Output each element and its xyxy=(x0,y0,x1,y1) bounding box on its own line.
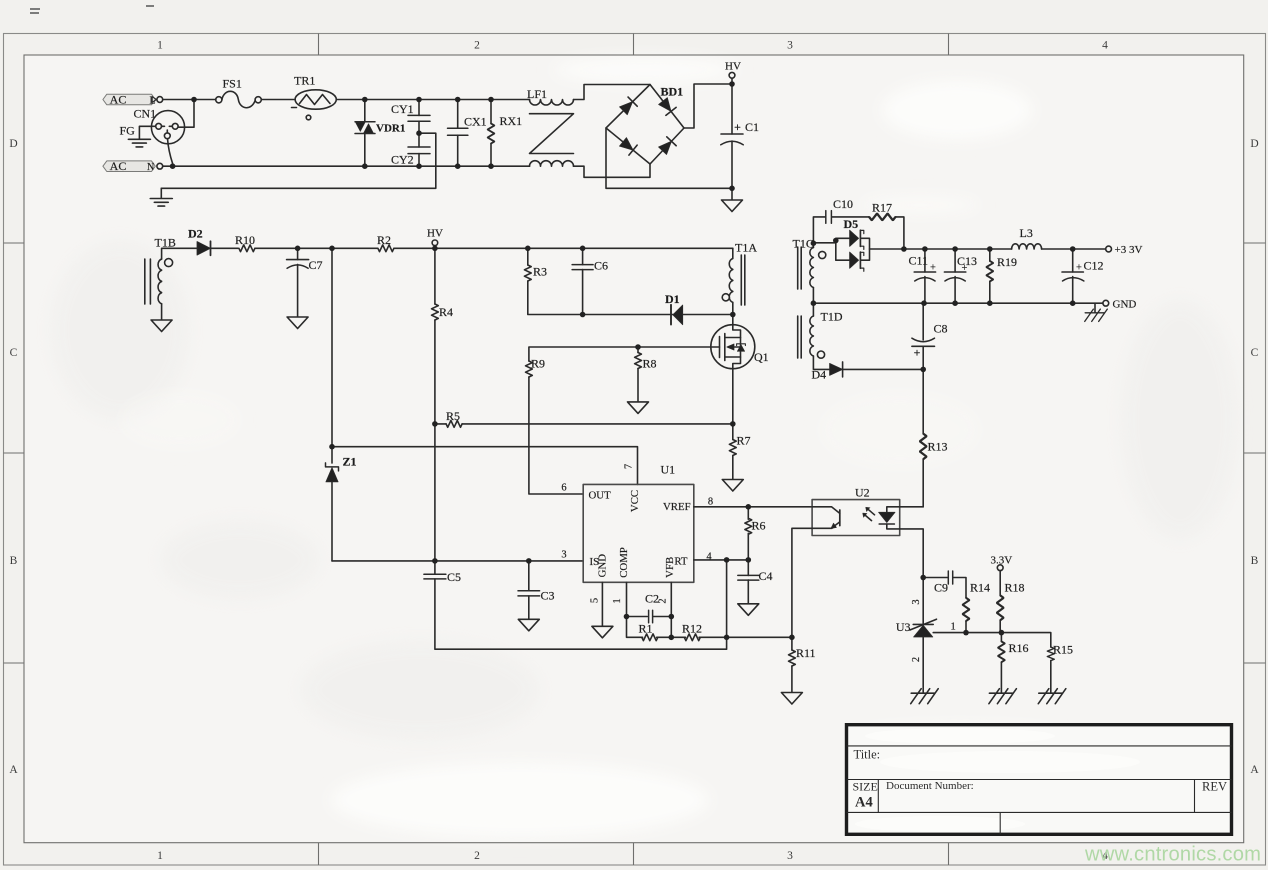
svg-text:2: 2 xyxy=(474,850,480,862)
svg-text:R12: R12 xyxy=(682,622,702,636)
svg-text:1: 1 xyxy=(612,598,623,603)
svg-text:FS1: FS1 xyxy=(223,77,242,91)
svg-text:B: B xyxy=(10,555,18,567)
svg-text:VFB: VFB xyxy=(664,557,676,578)
svg-text:4: 4 xyxy=(1102,40,1108,52)
svg-text:D4: D4 xyxy=(812,368,827,382)
svg-text:1: 1 xyxy=(951,622,956,633)
svg-text:D1: D1 xyxy=(665,292,680,306)
svg-text:AC: AC xyxy=(110,93,127,107)
svg-text:+: + xyxy=(1076,263,1082,274)
svg-text:Z1: Z1 xyxy=(343,455,357,469)
svg-text:C8: C8 xyxy=(934,322,948,336)
svg-text:U3: U3 xyxy=(896,620,911,634)
svg-text:R2: R2 xyxy=(377,233,391,247)
svg-text:7: 7 xyxy=(624,464,635,469)
svg-text:A: A xyxy=(9,764,18,776)
svg-text:D: D xyxy=(1250,138,1258,150)
svg-text:R18: R18 xyxy=(1005,581,1025,595)
svg-text:+: + xyxy=(930,263,936,274)
svg-text:RX1: RX1 xyxy=(500,114,523,128)
svg-text:C: C xyxy=(10,347,18,359)
svg-text:3: 3 xyxy=(787,850,793,862)
svg-text:U2: U2 xyxy=(855,486,870,500)
svg-text:C7: C7 xyxy=(309,258,323,272)
svg-text:3: 3 xyxy=(787,40,793,52)
svg-text:C3: C3 xyxy=(541,589,555,603)
svg-text:CY1: CY1 xyxy=(391,102,414,116)
svg-text:COMP: COMP xyxy=(618,547,630,578)
svg-text:C10: C10 xyxy=(833,197,853,211)
svg-text:GND: GND xyxy=(1113,298,1137,310)
svg-text:LF1: LF1 xyxy=(527,87,547,101)
svg-text:3.3V: 3.3V xyxy=(991,555,1013,567)
svg-text:CX1: CX1 xyxy=(464,115,487,129)
svg-text:T1A: T1A xyxy=(735,241,757,255)
svg-text:D2: D2 xyxy=(188,227,203,241)
svg-text:C5: C5 xyxy=(447,570,461,584)
svg-text:R8: R8 xyxy=(643,357,657,371)
svg-text:U1: U1 xyxy=(661,463,676,477)
svg-text:BD1: BD1 xyxy=(661,85,684,99)
svg-text:T1C: T1C xyxy=(793,237,814,251)
svg-text:Q1: Q1 xyxy=(754,350,769,364)
svg-text:+3 3V: +3 3V xyxy=(1115,244,1143,256)
svg-text:Document Number:: Document Number: xyxy=(886,780,974,792)
svg-text:C12: C12 xyxy=(1084,259,1104,273)
svg-text:RT: RT xyxy=(674,555,688,567)
svg-text:1: 1 xyxy=(157,850,163,862)
svg-text:3: 3 xyxy=(911,599,922,604)
svg-text:C11: C11 xyxy=(909,254,929,268)
svg-text:R6: R6 xyxy=(752,519,766,533)
svg-text:R4: R4 xyxy=(439,305,453,319)
svg-text:www.cntronics.com: www.cntronics.com xyxy=(1084,844,1261,866)
svg-text:2: 2 xyxy=(658,598,669,603)
svg-text:4: 4 xyxy=(706,552,712,563)
svg-text:TR1: TR1 xyxy=(294,74,315,88)
svg-text:C: C xyxy=(1251,347,1259,359)
svg-text:R1: R1 xyxy=(639,622,653,636)
svg-text:2: 2 xyxy=(474,40,480,52)
svg-text:R10: R10 xyxy=(235,233,255,247)
svg-text:GND: GND xyxy=(597,554,609,578)
svg-text:C6: C6 xyxy=(594,259,608,273)
svg-text:C2: C2 xyxy=(645,592,659,606)
svg-text:N: N xyxy=(147,162,154,173)
svg-text:OUT: OUT xyxy=(589,490,612,502)
svg-text:R5: R5 xyxy=(446,409,460,423)
svg-text:T1D: T1D xyxy=(821,310,843,324)
svg-text:8: 8 xyxy=(708,497,713,508)
svg-text:C9: C9 xyxy=(934,581,948,595)
svg-text:D: D xyxy=(9,138,17,150)
svg-text:B: B xyxy=(1251,555,1259,567)
svg-text:R3: R3 xyxy=(533,265,547,279)
svg-text:R14: R14 xyxy=(970,581,990,595)
svg-text:T1B: T1B xyxy=(155,235,176,249)
svg-text:R17: R17 xyxy=(872,201,892,215)
svg-text:R19: R19 xyxy=(997,255,1017,269)
svg-text:C4: C4 xyxy=(759,569,773,583)
svg-text:HV: HV xyxy=(725,61,741,73)
svg-text:VCC: VCC xyxy=(629,490,641,512)
svg-text:5: 5 xyxy=(590,598,601,603)
svg-text:HV: HV xyxy=(427,228,443,240)
svg-text:3: 3 xyxy=(561,550,566,561)
svg-text:SIZE: SIZE xyxy=(853,780,878,794)
svg-text:R15: R15 xyxy=(1053,643,1073,657)
svg-text:L: L xyxy=(150,95,156,106)
svg-text:R7: R7 xyxy=(737,434,751,448)
svg-text:Title:: Title: xyxy=(854,748,881,762)
svg-text:AC: AC xyxy=(110,159,127,173)
svg-text:R13: R13 xyxy=(928,440,948,454)
svg-text:R16: R16 xyxy=(1009,641,1029,655)
svg-text:REV: REV xyxy=(1202,780,1227,794)
svg-text:C1: C1 xyxy=(745,120,759,134)
svg-text:6: 6 xyxy=(561,483,566,494)
svg-text:VREF: VREF xyxy=(663,501,691,513)
svg-text:R9: R9 xyxy=(531,357,545,371)
svg-text:VDR1: VDR1 xyxy=(376,123,405,135)
svg-text:A: A xyxy=(1250,764,1259,776)
svg-text:FG: FG xyxy=(120,124,136,138)
svg-text:L3: L3 xyxy=(1020,226,1033,240)
svg-text:1: 1 xyxy=(157,40,163,52)
svg-text:R11: R11 xyxy=(796,646,816,660)
svg-text:+: + xyxy=(962,263,968,274)
svg-text:2: 2 xyxy=(911,657,922,662)
svg-text:CY2: CY2 xyxy=(391,153,414,167)
svg-text:A4: A4 xyxy=(855,795,873,811)
svg-text:D5: D5 xyxy=(844,217,859,231)
svg-text:CN1: CN1 xyxy=(134,107,157,121)
